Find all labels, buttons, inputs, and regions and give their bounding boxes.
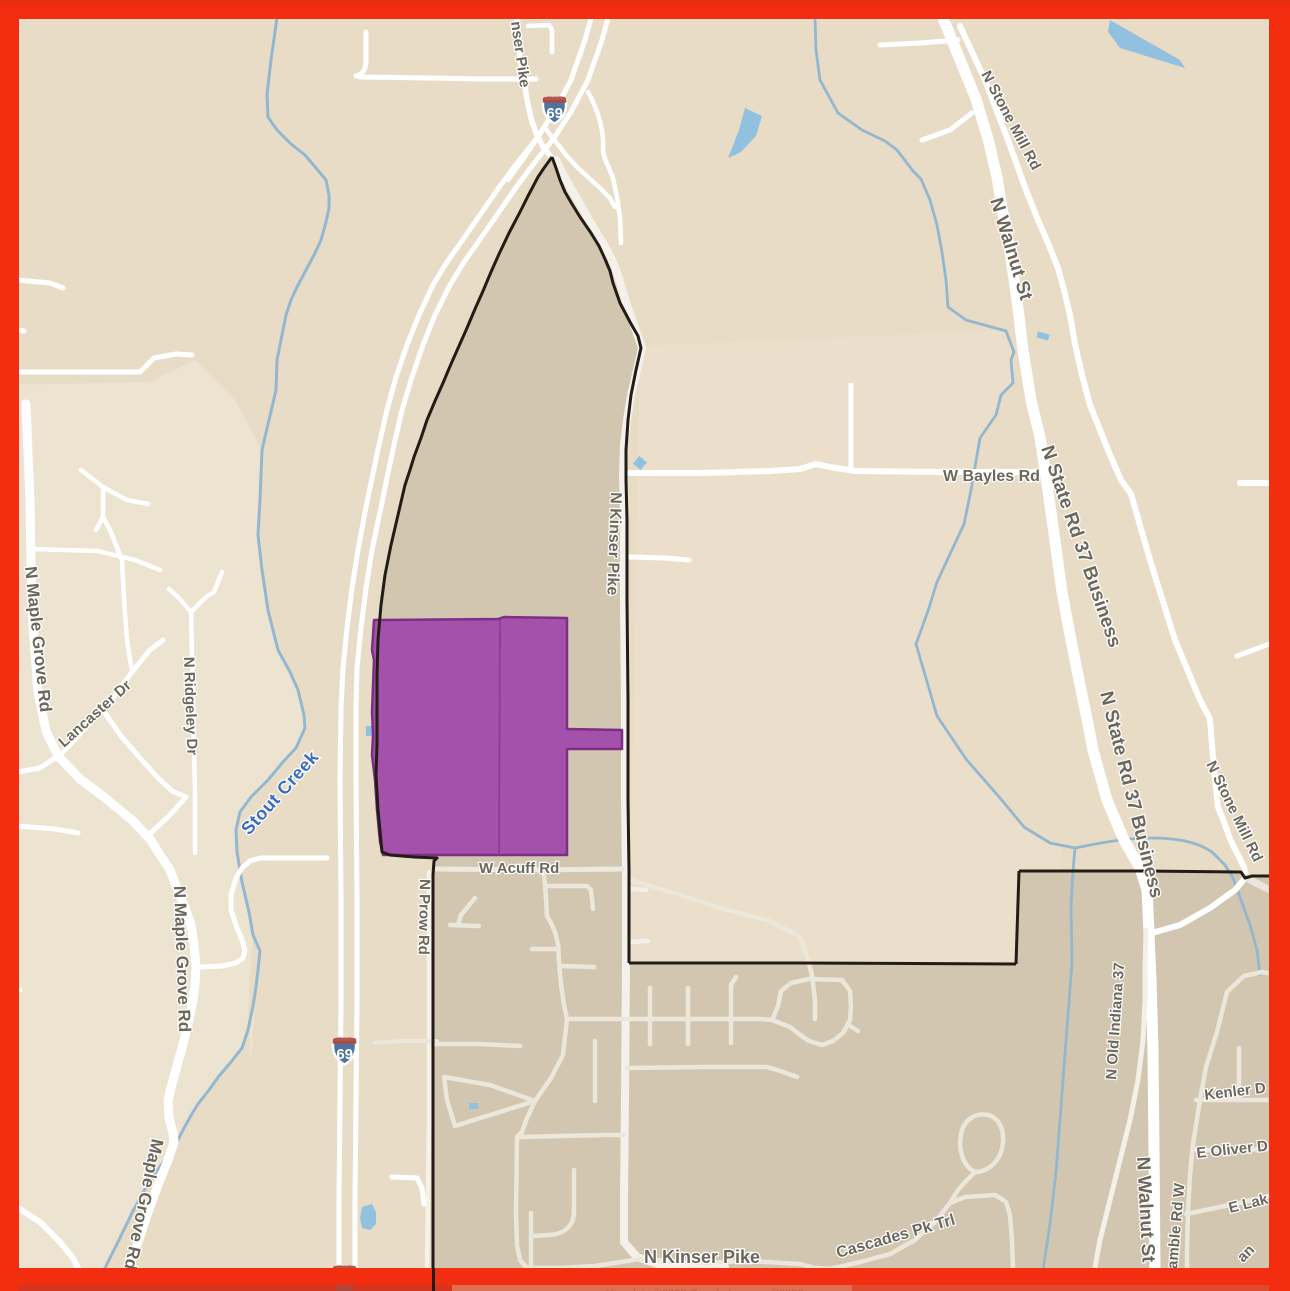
svg-text:69: 69	[336, 1046, 353, 1063]
svg-text:N Kinser Pike: N Kinser Pike	[603, 492, 624, 596]
svg-text:N Ridgeley Dr: N Ridgeley Dr	[180, 657, 200, 756]
svg-text:69: 69	[546, 105, 563, 122]
svg-text:W Acuff Rd: W Acuff Rd	[479, 860, 559, 877]
svg-text:W Bayles Rd: W Bayles Rd	[943, 468, 1040, 485]
svg-text:N Prow Rd: N Prow Rd	[415, 879, 433, 955]
svg-text:N Kinser Pike: N Kinser Pike	[644, 1247, 760, 1267]
